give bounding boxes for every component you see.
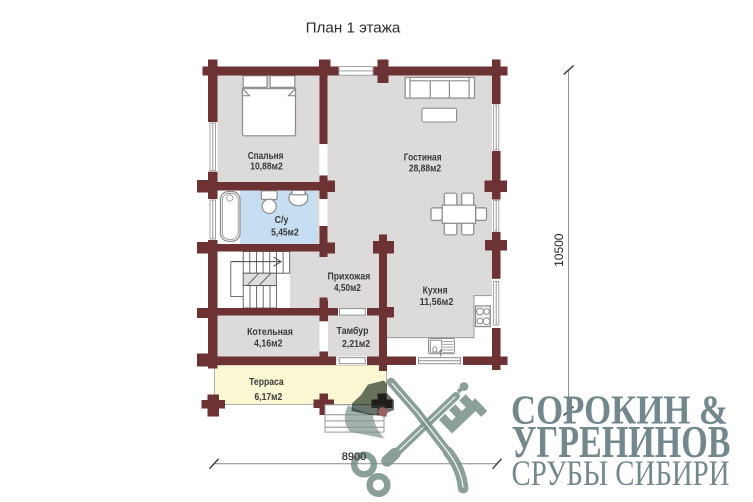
svg-text:Тамбур: Тамбур xyxy=(337,325,369,337)
svg-text:2,21м2: 2,21м2 xyxy=(342,339,370,350)
svg-text:28,88м2: 28,88м2 xyxy=(409,163,442,174)
svg-text:8900: 8900 xyxy=(342,451,366,463)
svg-text:11,56м2: 11,56м2 xyxy=(420,297,454,308)
svg-text:4,16м2: 4,16м2 xyxy=(254,339,283,350)
svg-text:10,88м2: 10,88м2 xyxy=(250,162,283,173)
svg-text:Терраса: Терраса xyxy=(249,377,284,388)
svg-text:4,50м2: 4,50м2 xyxy=(334,283,361,294)
svg-text:Котельная: Котельная xyxy=(247,327,293,338)
svg-text:Спальня: Спальня xyxy=(248,151,284,162)
svg-text:СРУБЫ СИБИРИ: СРУБЫ СИБИРИ xyxy=(512,453,730,493)
svg-text:С/у: С/у xyxy=(275,215,289,226)
svg-text:План 1 этажа: План 1 этажа xyxy=(306,20,401,37)
svg-text:5,45м2: 5,45м2 xyxy=(271,228,299,239)
svg-text:Кухня: Кухня xyxy=(423,286,448,297)
svg-text:Гостиная: Гостиная xyxy=(404,153,442,164)
svg-text:Прихожая: Прихожая xyxy=(328,271,371,282)
svg-text:10500: 10500 xyxy=(552,233,566,267)
svg-text:6,17м2: 6,17м2 xyxy=(255,392,283,403)
